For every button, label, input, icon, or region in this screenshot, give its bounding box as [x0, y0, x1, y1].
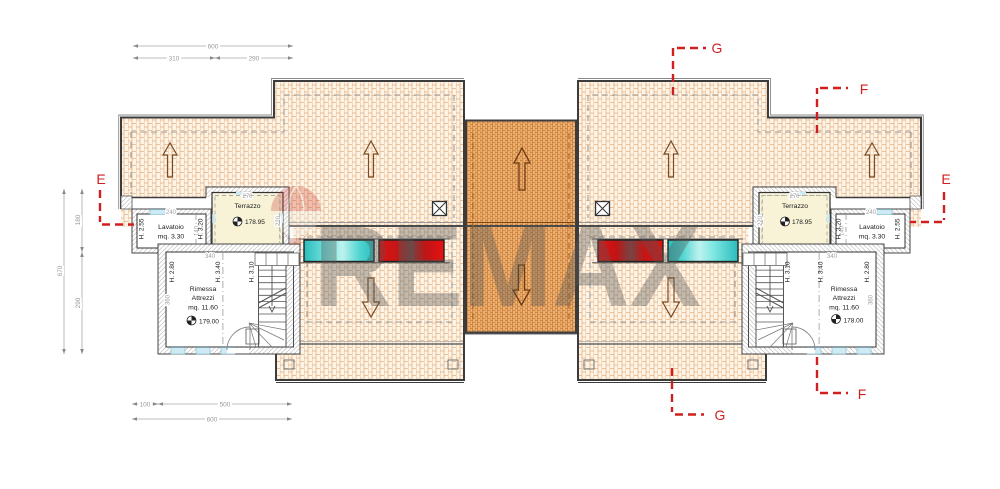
svg-text:G: G — [712, 40, 723, 56]
svg-text:H. 3.40: H. 3.40 — [215, 261, 222, 282]
svg-text:340: 340 — [827, 254, 838, 260]
svg-text:178.95: 178.95 — [245, 219, 265, 226]
svg-text:mq. 11.60: mq. 11.60 — [188, 305, 218, 312]
svg-text:F: F — [858, 386, 867, 402]
svg-text:Lavatoio: Lavatoio — [859, 224, 885, 231]
svg-text:Attrezzi: Attrezzi — [192, 295, 215, 302]
svg-text:Lavatoio: Lavatoio — [158, 224, 184, 231]
svg-text:H. 3.40: H. 3.40 — [818, 261, 825, 282]
svg-text:mq. 3.30: mq. 3.30 — [158, 234, 185, 241]
svg-text:H. 3.20: H. 3.20 — [836, 218, 843, 239]
svg-text:178.00: 178.00 — [844, 318, 864, 325]
svg-text:H. 3.10: H. 3.10 — [785, 261, 792, 282]
svg-text:220: 220 — [276, 215, 282, 226]
svg-text:670: 670 — [57, 265, 64, 276]
svg-text:Terrazzo: Terrazzo — [234, 203, 260, 210]
svg-text:F: F — [860, 81, 869, 97]
svg-text:Rimessa: Rimessa — [831, 286, 858, 293]
svg-text:270: 270 — [242, 194, 253, 200]
svg-text:220: 220 — [758, 215, 764, 226]
svg-text:270: 270 — [789, 194, 800, 200]
svg-text:240: 240 — [166, 210, 177, 216]
svg-text:Attrezzi: Attrezzi — [833, 295, 856, 302]
svg-text:600: 600 — [207, 417, 218, 424]
svg-text:310: 310 — [169, 56, 180, 63]
svg-text:290: 290 — [249, 56, 260, 63]
svg-text:500: 500 — [220, 402, 231, 409]
svg-text:100: 100 — [140, 402, 151, 409]
svg-text:240: 240 — [866, 210, 877, 216]
svg-text:H. 2.55: H. 2.55 — [139, 218, 146, 239]
svg-text:Rimessa: Rimessa — [190, 286, 217, 293]
svg-text:179.00: 179.00 — [199, 319, 219, 326]
svg-text:REMAX: REMAX — [314, 203, 701, 331]
svg-text:E: E — [941, 171, 950, 187]
svg-text:mq. 11.60: mq. 11.60 — [829, 305, 859, 312]
svg-text:360: 360 — [869, 294, 875, 305]
svg-text:G: G — [715, 407, 726, 423]
svg-text:E: E — [96, 171, 105, 187]
svg-text:290: 290 — [75, 297, 82, 308]
svg-text:178.95: 178.95 — [792, 219, 812, 226]
svg-text:340: 340 — [205, 254, 216, 260]
svg-text:H. 2.55: H. 2.55 — [895, 218, 902, 239]
svg-text:H. 3.10: H. 3.10 — [249, 261, 256, 282]
svg-text:Terrazzo: Terrazzo — [782, 203, 808, 210]
svg-text:H. 3.20: H. 3.20 — [198, 218, 205, 239]
svg-text:600: 600 — [208, 44, 219, 51]
svg-text:mq. 3.30: mq. 3.30 — [859, 234, 886, 241]
svg-text:360: 360 — [166, 294, 172, 305]
svg-text:180: 180 — [75, 214, 82, 225]
svg-text:H. 2.80: H. 2.80 — [864, 261, 871, 282]
svg-text:H. 2.80: H. 2.80 — [169, 261, 176, 282]
